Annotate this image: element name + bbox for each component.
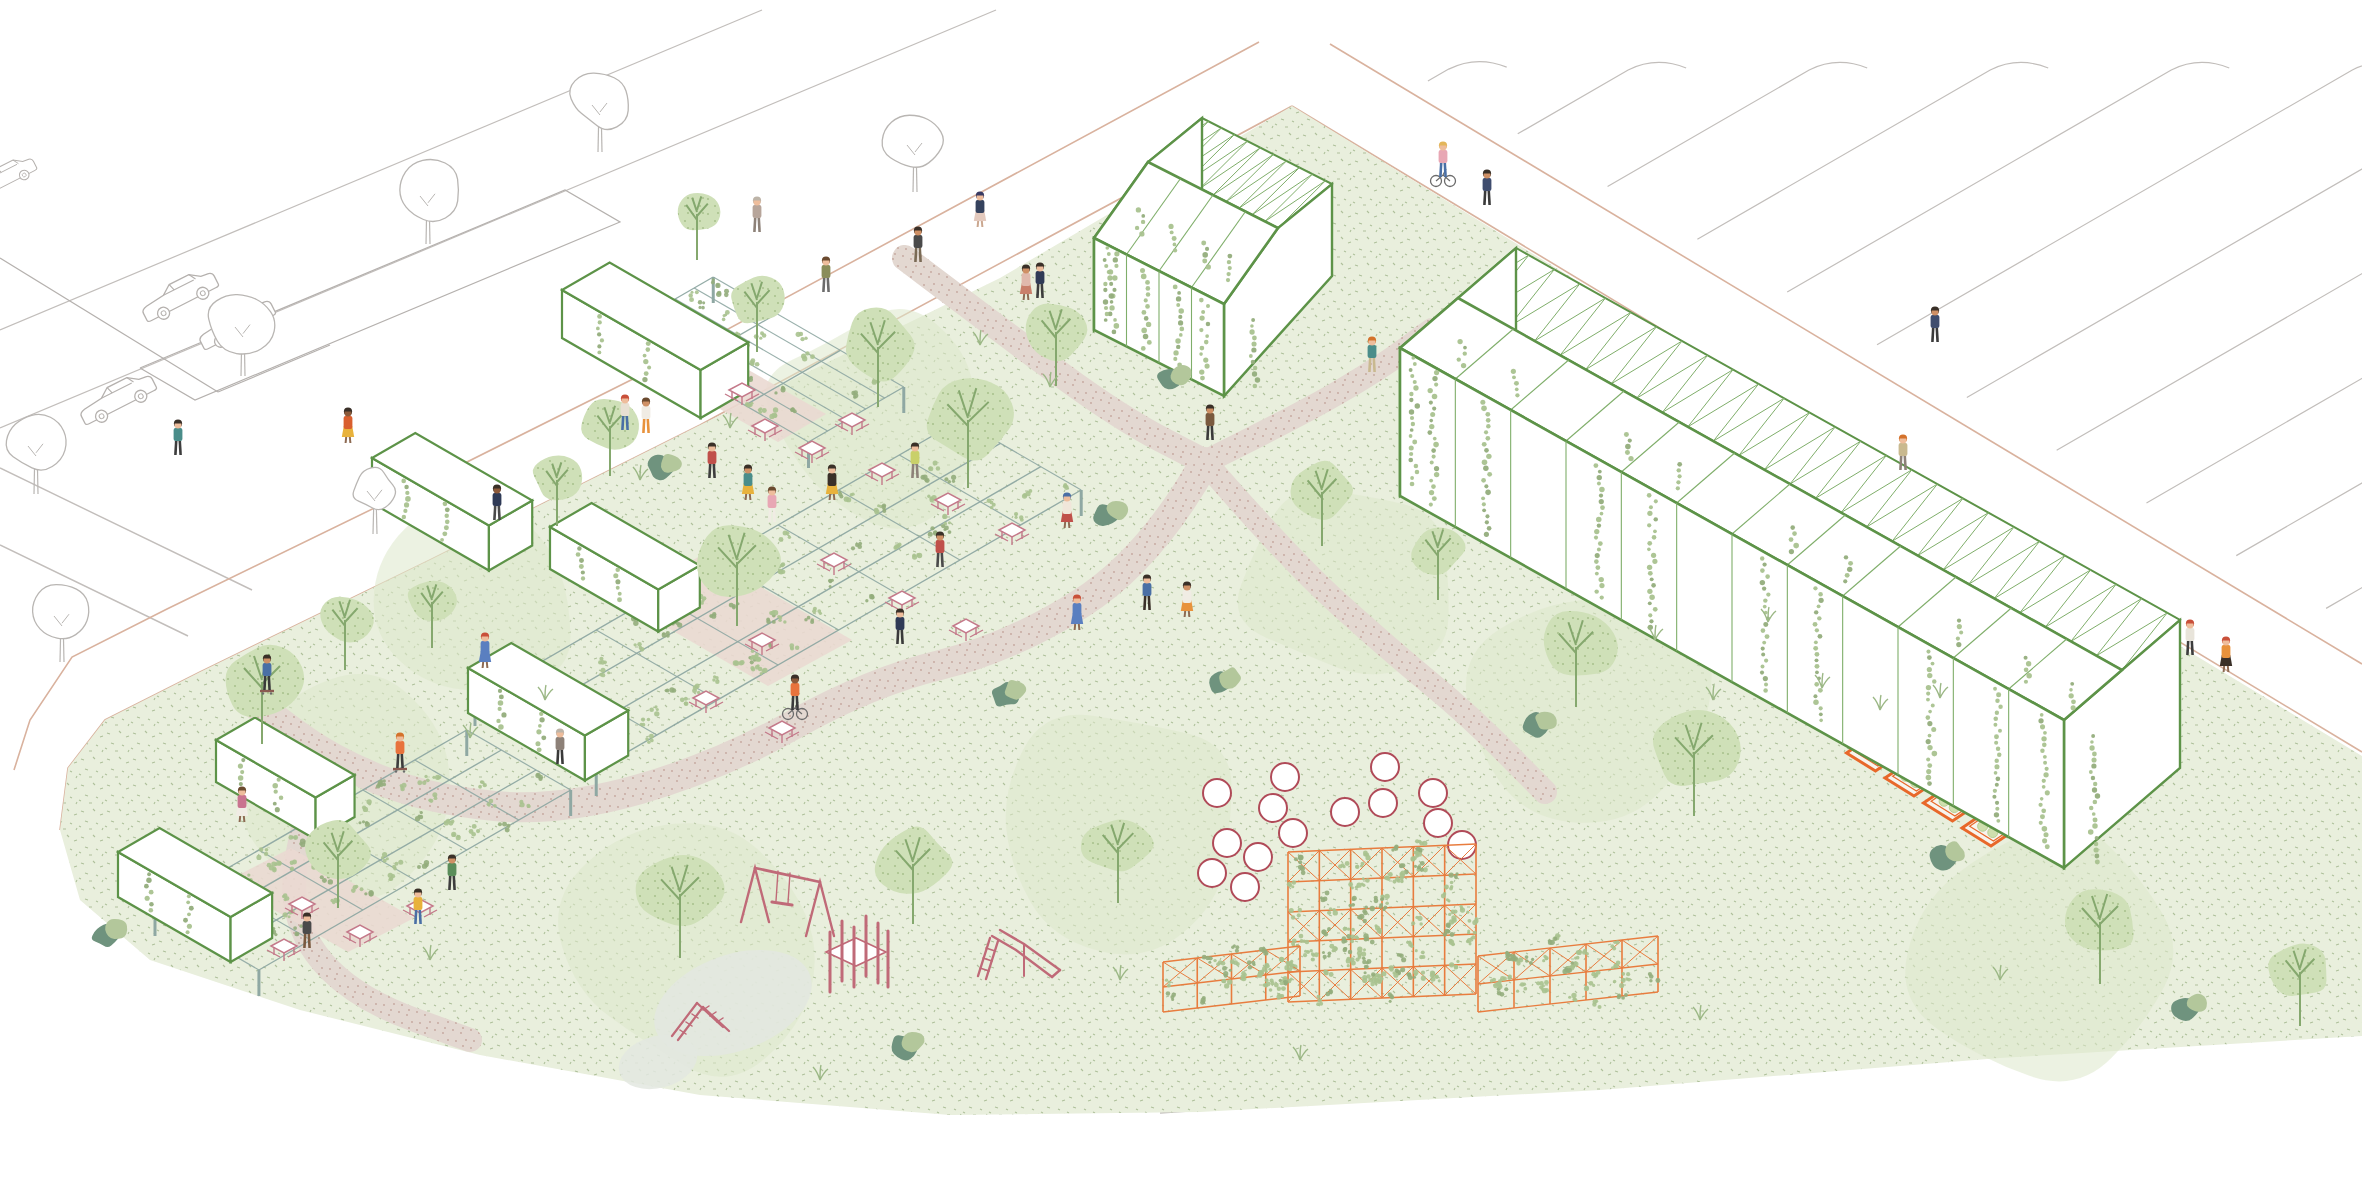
- tree-planting-circle: [1213, 829, 1241, 857]
- car: [0, 152, 39, 202]
- tree-planting-circle: [1419, 779, 1447, 807]
- street-tree-outline: [570, 73, 629, 152]
- parked-cars: [0, 152, 279, 430]
- park-scene-svg: [0, 0, 2362, 1180]
- parking-stripe: [1518, 62, 1686, 133]
- parking-stripe: [1967, 62, 2362, 397]
- street-tree-outline: [208, 295, 275, 376]
- person-walk: [822, 256, 831, 292]
- parking-stripe: [2146, 62, 2362, 502]
- person-walk: [2186, 619, 2195, 655]
- parking-stripe: [1787, 62, 2229, 292]
- parking-stripe: [2236, 62, 2362, 555]
- park-tree: [678, 193, 721, 260]
- street-tree-outline: [882, 115, 943, 192]
- person-walk: [753, 196, 762, 232]
- person-skirt: [342, 407, 354, 443]
- tree-planting-circle: [1271, 763, 1299, 791]
- person-walk: [174, 419, 183, 455]
- street-median-line: [0, 10, 762, 330]
- bush: [92, 919, 127, 947]
- parking-stripe: [1608, 62, 1868, 186]
- person-walk: [1483, 169, 1492, 205]
- street-tree-outline: [6, 414, 66, 494]
- tree-planting-circle: [1331, 798, 1359, 826]
- tree-planting-circle: [1424, 809, 1452, 837]
- tree-planting-circle: [1259, 794, 1287, 822]
- person-walk: [642, 397, 651, 433]
- person-cyclist: [1431, 141, 1456, 186]
- tree-planting-circle: [1244, 843, 1272, 871]
- street-edge-line: [0, 545, 188, 636]
- person-walk: [1931, 306, 1940, 342]
- tree-planting-circle: [1231, 873, 1259, 901]
- parking-stripe: [1428, 62, 1507, 82]
- parking-stripe: [1697, 62, 2048, 239]
- tree-planting-circle: [1203, 779, 1231, 807]
- tree-planting-circle: [1371, 753, 1399, 781]
- tree-planting-circle: [1198, 859, 1226, 887]
- tree-planting-circle: [1279, 819, 1307, 847]
- site-plan-illustration: [0, 0, 2362, 1180]
- parking-stripe: [2326, 62, 2362, 608]
- street-tree-outline: [400, 159, 459, 244]
- parking-stripe: [2057, 62, 2362, 450]
- parking-stripe: [1877, 62, 2362, 344]
- street-tree-outline: [33, 585, 89, 662]
- parking-curb-line: [140, 190, 620, 400]
- car: [75, 368, 159, 430]
- tree-planting-circle: [1369, 789, 1397, 817]
- person-skirt: [974, 191, 986, 227]
